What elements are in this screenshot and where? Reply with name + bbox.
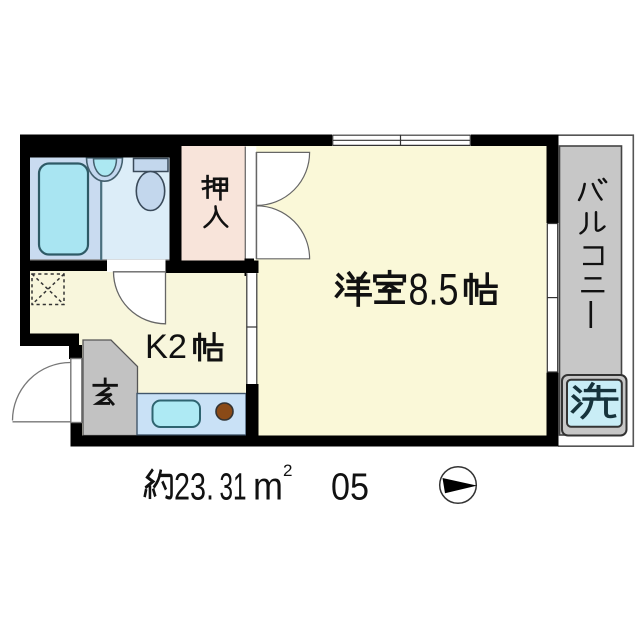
svg-text:m: m bbox=[253, 466, 283, 509]
svg-text:23.: 23. bbox=[174, 467, 214, 509]
svg-text:8.5: 8.5 bbox=[409, 266, 459, 315]
svg-text:K2: K2 bbox=[145, 328, 187, 366]
svg-text:31: 31 bbox=[220, 467, 247, 509]
svg-text:05: 05 bbox=[331, 467, 369, 509]
svg-text:2: 2 bbox=[283, 461, 292, 480]
